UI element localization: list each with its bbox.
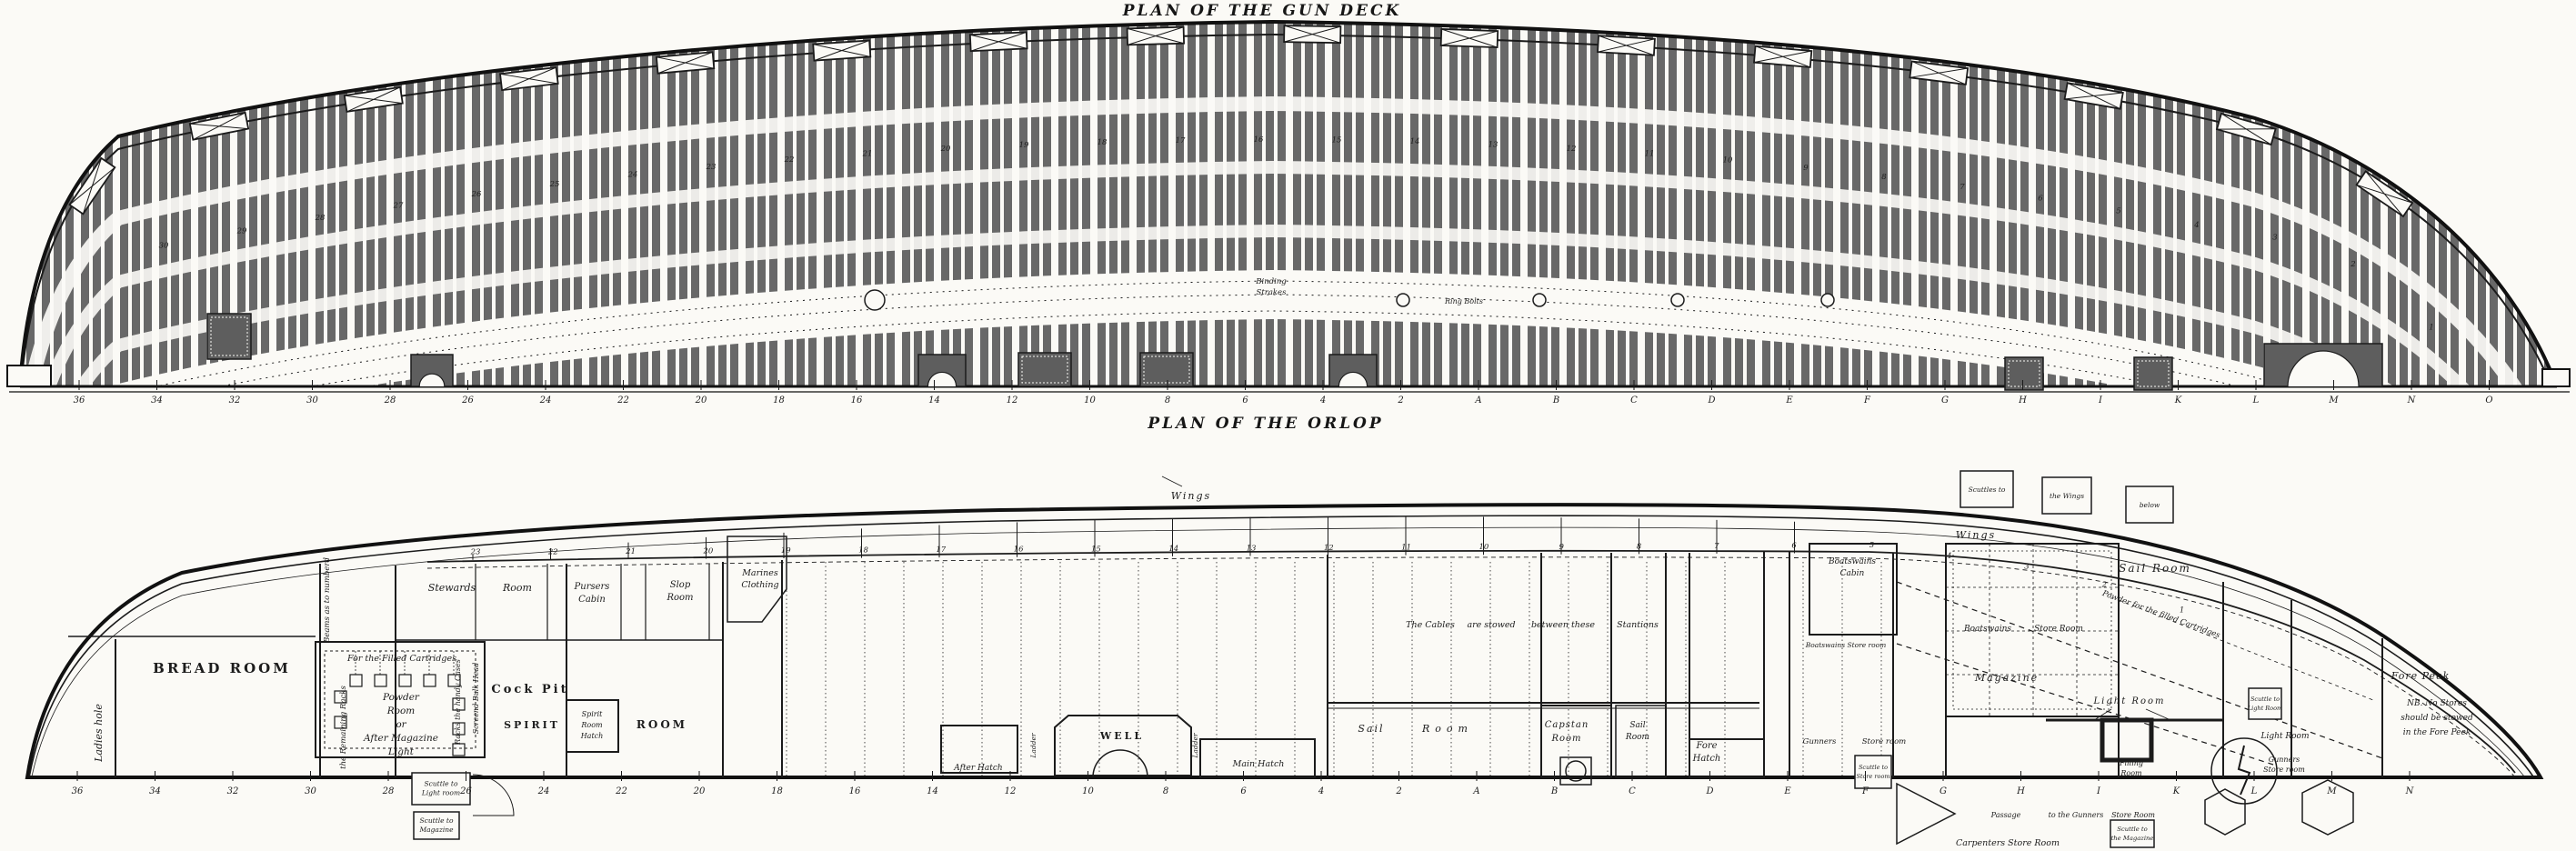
station-label: 32 [227, 786, 239, 796]
label-passage-2: to the Gunners [2049, 811, 2104, 819]
beam-number: 12 [1567, 145, 1577, 154]
station-label: M [2326, 786, 2337, 796]
label-magazine: Magazine [1974, 672, 2039, 684]
hatch-opening [207, 314, 251, 359]
station-label: M [2328, 395, 2339, 405]
station-label: 20 [693, 786, 706, 796]
hatch-opening [2005, 357, 2043, 390]
station-label: 34 [151, 395, 163, 405]
label-racks-cases: Racks the handy Cases [454, 659, 462, 746]
station-label: 18 [771, 786, 783, 796]
ring-bolt [1533, 294, 1546, 306]
station-label: D [1705, 786, 1713, 796]
gunport [1441, 29, 1498, 47]
beam-number: 30 [159, 241, 169, 250]
box-scuttle-magazine-fwd [2110, 820, 2154, 847]
station-label: E [1783, 786, 1791, 796]
label-bread-room: BREAD ROOM [153, 660, 291, 676]
beam-number: 23 [706, 163, 717, 172]
label-gunners: Gunners [1803, 737, 1837, 746]
carpenters-hexagon [2205, 789, 2245, 835]
beam-number: 14 [1410, 137, 1420, 146]
station-label: H [2016, 786, 2025, 796]
beam-number: 25 [549, 180, 560, 189]
station-label: 28 [382, 786, 395, 796]
ring-bolt [1821, 294, 1834, 306]
label-ladder-fore: Ladder [1191, 733, 1199, 758]
beam-number: 20 [702, 546, 713, 556]
hatch-opening [2134, 357, 2172, 390]
beam-number: 29 [236, 226, 247, 235]
beam-number: 19 [781, 546, 791, 556]
station-label: B [1552, 395, 1559, 405]
beam-number: 12 [1324, 544, 1334, 553]
beam-number: 10 [1723, 156, 1733, 165]
beam-number: 24 [627, 171, 638, 180]
beam-number: 1 [2429, 324, 2433, 333]
label-fore-peek-note: NB. No Storesshould be stowedin the Fore… [2401, 699, 2473, 737]
hatch-opening [1140, 353, 1193, 386]
beam-number: 13 [1488, 140, 1498, 149]
label-spirit-room: ROOM [636, 718, 687, 731]
scuttle-fan [473, 775, 514, 816]
beam-number: 6 [1791, 541, 1797, 550]
station-label: L [2252, 395, 2260, 405]
beam-number: 22 [784, 155, 795, 165]
station-label: 36 [74, 395, 85, 405]
station-label: 10 [1084, 395, 1096, 405]
station-label: C [1629, 786, 1636, 796]
beam-number: 9 [1803, 164, 1809, 173]
label-carpenters-store: Carpenters Store Room [1956, 838, 2060, 848]
station-label: 10 [1082, 786, 1094, 796]
station-label: 8 [1165, 395, 1170, 405]
box-scuttles-to-label: Scuttles to [1969, 486, 2006, 494]
beam-number: 17 [936, 546, 946, 555]
station-label: 18 [773, 395, 785, 405]
station-label: G [1941, 395, 1949, 405]
station-label: A [1472, 786, 1479, 796]
beam-number: 11 [1401, 544, 1411, 553]
label-wings-fwd: Wings [1956, 529, 1996, 541]
label-sail: Sail [1358, 723, 1384, 735]
gunport [813, 41, 870, 61]
label-cables-4: Stantions [1617, 620, 1659, 630]
label-screened-bulkhead: Screend Bulk Head [472, 663, 480, 735]
beam-number: 13 [1247, 544, 1257, 553]
station-label: 12 [1007, 395, 1018, 405]
beam-number: 4 [1946, 552, 1951, 561]
station-label: 34 [149, 786, 161, 796]
station-label: K [2174, 395, 2182, 405]
station-label: D [1707, 395, 1715, 405]
label-main-hatch: Main Hatch [1232, 759, 1285, 769]
beam-number: 21 [625, 547, 636, 556]
station-label: 4 [1318, 786, 1324, 796]
beam-number: 22 [547, 547, 558, 556]
label-boatswains-2: Boatswains [1963, 625, 2011, 634]
station-label: K [2172, 786, 2180, 796]
station-label: 24 [537, 786, 550, 796]
station-label: 6 [1242, 395, 1248, 405]
station-label: 26 [459, 786, 472, 796]
label-wings-mid: Wings [1171, 490, 1211, 502]
station-label: 22 [616, 395, 629, 405]
station-label: 6 [1240, 786, 1247, 796]
station-label: 12 [1005, 786, 1017, 796]
gunport [1284, 25, 1340, 43]
station-label: N [2407, 395, 2417, 405]
beam-number: 3 [2024, 563, 2029, 572]
gunport [970, 32, 1027, 51]
label-spirit: SPIRIT [504, 719, 560, 731]
beam-number: 4 [2193, 221, 2199, 230]
label-cock-pit: Cock Pit [491, 683, 568, 696]
wings-arrow [1162, 476, 1182, 486]
station-label: F [1861, 786, 1869, 796]
box-the-wings-label: the Wings [2050, 492, 2084, 500]
station-label: 24 [539, 395, 552, 405]
beam-number: 9 [1559, 543, 1564, 552]
box-scuttle-light-room-aft-label: Scuttle toLight room [421, 780, 460, 797]
station-label: 2 [1395, 786, 1401, 796]
beam-number: 14 [1168, 545, 1178, 554]
label-ladder-aft: Ladder [1029, 733, 1037, 758]
beam-number: 8 [1637, 542, 1642, 551]
beam-number: 17 [1176, 136, 1186, 145]
label-fore-peek: Fore Peek [2391, 670, 2451, 682]
station-label: 26 [461, 395, 474, 405]
station-label: 30 [305, 786, 316, 796]
hatch-opening [1018, 353, 1071, 386]
station-label: I [2096, 786, 2101, 796]
beam-number: 6 [2038, 195, 2043, 204]
bow-step [2542, 369, 2570, 386]
station-label: 22 [615, 786, 627, 796]
label-sail-room-fwd: Sail Room [2119, 562, 2191, 575]
ring-bolt [1397, 294, 1409, 306]
label-well: WELL [1099, 730, 1144, 742]
station-label: L [2250, 786, 2258, 796]
beam-number: 16 [1254, 135, 1264, 145]
ring-bolt [865, 290, 885, 310]
beam-number: 8 [1881, 173, 1887, 182]
label-light-room-1: Light Room [2093, 696, 2166, 706]
beam-number: 23 [470, 548, 481, 557]
beam-number: 26 [471, 190, 482, 199]
label-passage-3: Store Room [2111, 811, 2155, 819]
beam-number: 11 [1645, 150, 1655, 159]
station-label: N [2405, 786, 2415, 796]
beam-number: 16 [1014, 546, 1024, 555]
station-label: 32 [229, 395, 241, 405]
plan-label: Ring Bolts [1444, 297, 1483, 305]
station-label: A [1474, 395, 1481, 405]
label-filled-cartridges: For the Filled Cartridges [346, 654, 456, 664]
station-label: 16 [849, 786, 861, 796]
box-scuttle-magazine-aft-label: Scuttle toMagazine [418, 816, 454, 834]
station-label: 4 [1319, 395, 1326, 405]
station-label: 2 [1397, 395, 1403, 405]
label-stewards: Stewards [428, 582, 476, 594]
label-cables-1: The Cables [1406, 620, 1455, 630]
drawing-sheet: PLAN OF THE GUN DECK PLAN OF THE ORLOP [0, 0, 2576, 851]
station-label: H [2018, 395, 2027, 405]
beam-number: 18 [858, 546, 868, 556]
beam-number: 15 [1332, 135, 1342, 145]
label-after-hatch: After Hatch [953, 764, 1002, 773]
box-scuttle-light-room-fwd [2249, 688, 2281, 719]
station-label: 8 [1163, 786, 1168, 796]
beam-number: 7 [1714, 542, 1719, 551]
station-label: 14 [928, 395, 940, 405]
label-stewards-room: Room [502, 582, 532, 594]
beam-number: 18 [1098, 138, 1108, 147]
station-label: 30 [306, 395, 318, 405]
station-label: 16 [851, 395, 863, 405]
beam-number: 15 [1091, 545, 1101, 554]
beam-number: 1 [2180, 606, 2184, 615]
beam-number: 19 [1019, 141, 1029, 150]
label-ladies-hole: Ladies hole [93, 704, 105, 763]
beam-number: 28 [315, 214, 326, 223]
beam-number: 3 [2272, 233, 2277, 242]
label-cables-2: are stowed [1467, 620, 1515, 630]
station-label: 14 [927, 786, 938, 796]
label-cables-3: between these [1531, 620, 1595, 630]
station-label: B [1550, 786, 1558, 796]
station-label: F [1863, 395, 1871, 405]
beam-number: 5 [1869, 541, 1874, 550]
beam-number: 27 [393, 201, 404, 210]
label-gunners-store: Store room [1862, 737, 1907, 746]
gunport [1598, 35, 1655, 55]
label-light-room-2: Light Room [2260, 732, 2309, 741]
label-sail-room: Room [1421, 723, 1473, 735]
station-label: G [1940, 786, 1947, 796]
beam-number: 2 [2350, 260, 2355, 269]
station-label: I [2098, 395, 2103, 405]
beam-number: 5 [2116, 207, 2120, 216]
box-scuttle-store-room [1855, 756, 1891, 788]
station-label: 20 [695, 395, 707, 405]
station-label: 28 [384, 395, 396, 405]
label-passage-1: Passage [1990, 811, 2021, 819]
beam-number: 20 [940, 145, 951, 154]
station-label: 36 [72, 786, 84, 796]
label-spirit-room-hatch: SpiritRoomHatch [580, 710, 604, 740]
ship-plans-canvas: BindingStrakesRing Bolts3634323028262422… [0, 0, 2576, 851]
label-boatswains-store-2: Store Room [2034, 625, 2083, 634]
beam-number: 7 [1960, 183, 1965, 192]
station-label: C [1630, 395, 1638, 405]
box-below-label: below [2140, 501, 2160, 509]
ring-bolt [1671, 294, 1684, 306]
label-beams-note: Beams as to numberd [323, 557, 332, 644]
label-remaining-racks: the Remaining Racks [339, 686, 348, 769]
label-boatswains-store-1: Boatswains Store room [1805, 641, 1887, 649]
orlop-plan: SpiritRoomHatchScuttle toLight roomScutt… [27, 471, 2541, 848]
beam-number: 21 [862, 150, 873, 159]
gunport [1128, 27, 1184, 45]
beam-number: 10 [1478, 543, 1488, 552]
beam-number: 2 [2101, 580, 2107, 589]
station-label: O [2485, 395, 2492, 405]
stern-step [7, 365, 51, 386]
station-label: E [1785, 395, 1793, 405]
